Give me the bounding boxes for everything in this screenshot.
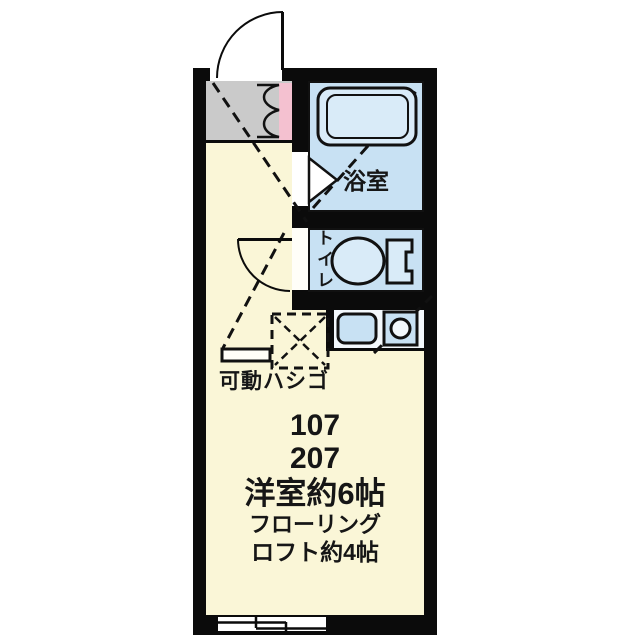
kitchen-counter-edge (326, 348, 424, 351)
ladder-label: 可動ハシゴ (219, 365, 329, 395)
unit-number-107: 107 (206, 409, 424, 442)
room-size-label: 洋室約6帖 (206, 475, 424, 512)
bathroom-label: 浴室 (308, 162, 424, 196)
bathroom-door-opening (292, 152, 308, 206)
toilet-door-opening (292, 228, 308, 290)
interior-wall-toilet-kitchen (292, 292, 424, 310)
entrance-accent-strip (279, 83, 293, 141)
loft-size-label: ロフト約4帖 (206, 538, 424, 566)
toilet-label: トイレ (311, 229, 336, 292)
sliding-window (218, 615, 326, 633)
entrance-door-opening (210, 68, 282, 81)
unit-number-207: 207 (206, 442, 424, 475)
entrance-step-edge (206, 140, 292, 143)
kitchen-counter-wall (326, 310, 334, 351)
interior-wall-bath-toilet (292, 212, 424, 228)
main-room-text-block: 107 207 洋室約6帖 フローリング ロフト約4帖 (206, 409, 424, 566)
kitchen-counter (334, 310, 424, 348)
flooring-label: フローリング (206, 512, 424, 538)
